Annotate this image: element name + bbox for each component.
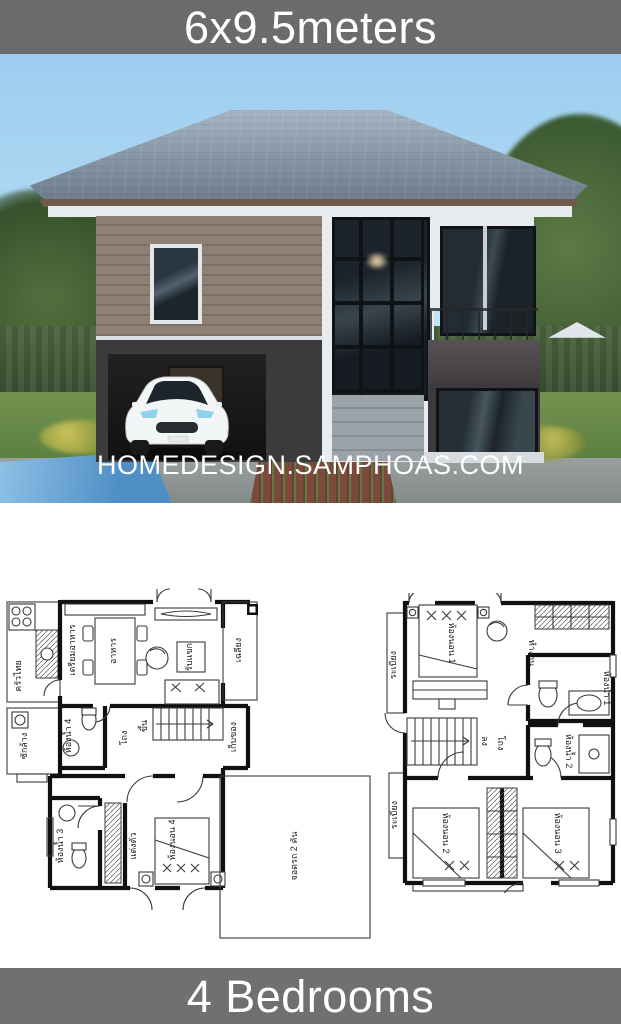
label-bedroom4: ห้องนอน 4 (167, 820, 177, 861)
bottom-banner: 4 Bedrooms (0, 968, 621, 1024)
upper-left-window (150, 244, 202, 324)
label-prep-kitchen: เตรียมอาหาร (67, 624, 77, 675)
label-stairs-up: ขึ้น (137, 720, 149, 732)
label-hall: โถง (119, 731, 129, 746)
label-bedroom3: ห้องนอน 3 (553, 813, 563, 854)
poster: 6x9.5meters (0, 0, 621, 1024)
label-back-balcony: ระเบียง (389, 801, 399, 829)
balcony-railing (430, 308, 538, 343)
label-dining: อาหาร (108, 638, 118, 664)
label-bathroom2: ห้องน้ำ 2 (564, 734, 576, 768)
top-banner: 6x9.5meters (0, 0, 621, 54)
label-dressing: แต่งตัว (128, 833, 138, 860)
hip-roof (30, 110, 588, 202)
balcony-parapet (428, 340, 540, 386)
label-bathroom4: ห้องน้ำ 4 (61, 719, 73, 753)
watermark-text: HOMEDESIGN.SAMPHOAS.COM (0, 450, 621, 481)
label-bedroom2: ห้องนอน 2 (441, 813, 451, 854)
dimensions-title: 6x9.5meters (184, 5, 437, 50)
chandelier-glow (366, 254, 388, 268)
first-floor-plan: ครัวไทย เตรียมอาหาร อาหาร รับแขก เฉลียง … (5, 588, 375, 946)
second-floor-siding (96, 216, 322, 338)
label-living: รับแขก (184, 643, 194, 671)
label-stairs-down: ลง (480, 736, 490, 746)
house-render: HOMEDESIGN.SAMPHOAS.COM (0, 54, 621, 503)
label-storage: เก็บของ (226, 722, 238, 752)
label-parking: จอดรถ 2 คัน (289, 832, 299, 881)
label-thai-kitchen: ครัวไทย (13, 660, 23, 692)
bedrooms-title: 4 Bedrooms (187, 974, 435, 1019)
label-porch: เฉลียง (233, 638, 243, 662)
label-balcony: ระเบียง (388, 651, 398, 679)
label-bathroom3: ห้องน้ำ 3 (53, 829, 65, 863)
label-laundry: ซักล้าง (19, 733, 29, 760)
label-bathroom1: ห้องน้ำ 1 (602, 671, 614, 705)
label-bedroom1: ห้องนอน 1 (447, 623, 457, 664)
second-floor-plan: ระเบียง ห้องนอน 1 ทำงาน ห้องน้ำ 1 โถง ลง… (383, 593, 621, 893)
label-work: ทำงาน (527, 640, 537, 667)
white-car (112, 352, 242, 464)
label-hall2: โถง (496, 736, 506, 751)
window-mullions-horizontal (332, 217, 424, 395)
